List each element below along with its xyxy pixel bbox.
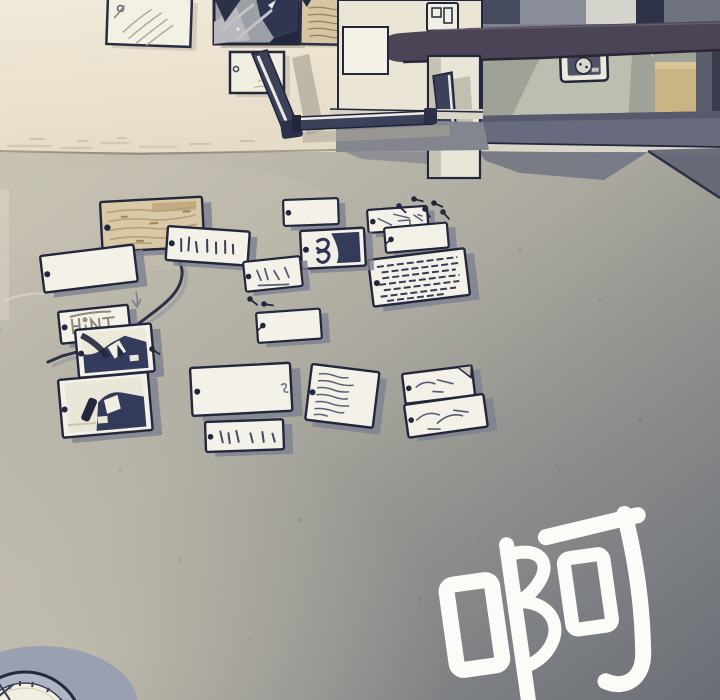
paper-small-blank-tag <box>283 198 346 231</box>
comic-panel: 啊 <box>0 0 720 700</box>
paper-tally-tag <box>205 419 293 457</box>
paper-tally-note-2 <box>243 255 310 296</box>
panel-art <box>0 0 720 700</box>
paper-blank-card-mid <box>256 308 330 348</box>
frame-handwritten-note <box>106 0 198 51</box>
paper-large-blank-card <box>190 362 303 422</box>
paper-photo-dark-pair <box>300 227 374 274</box>
paper-handwritten-report <box>304 364 387 435</box>
paper-photo-figure-2 <box>58 371 162 443</box>
frame-dark-cityscape <box>214 0 305 48</box>
